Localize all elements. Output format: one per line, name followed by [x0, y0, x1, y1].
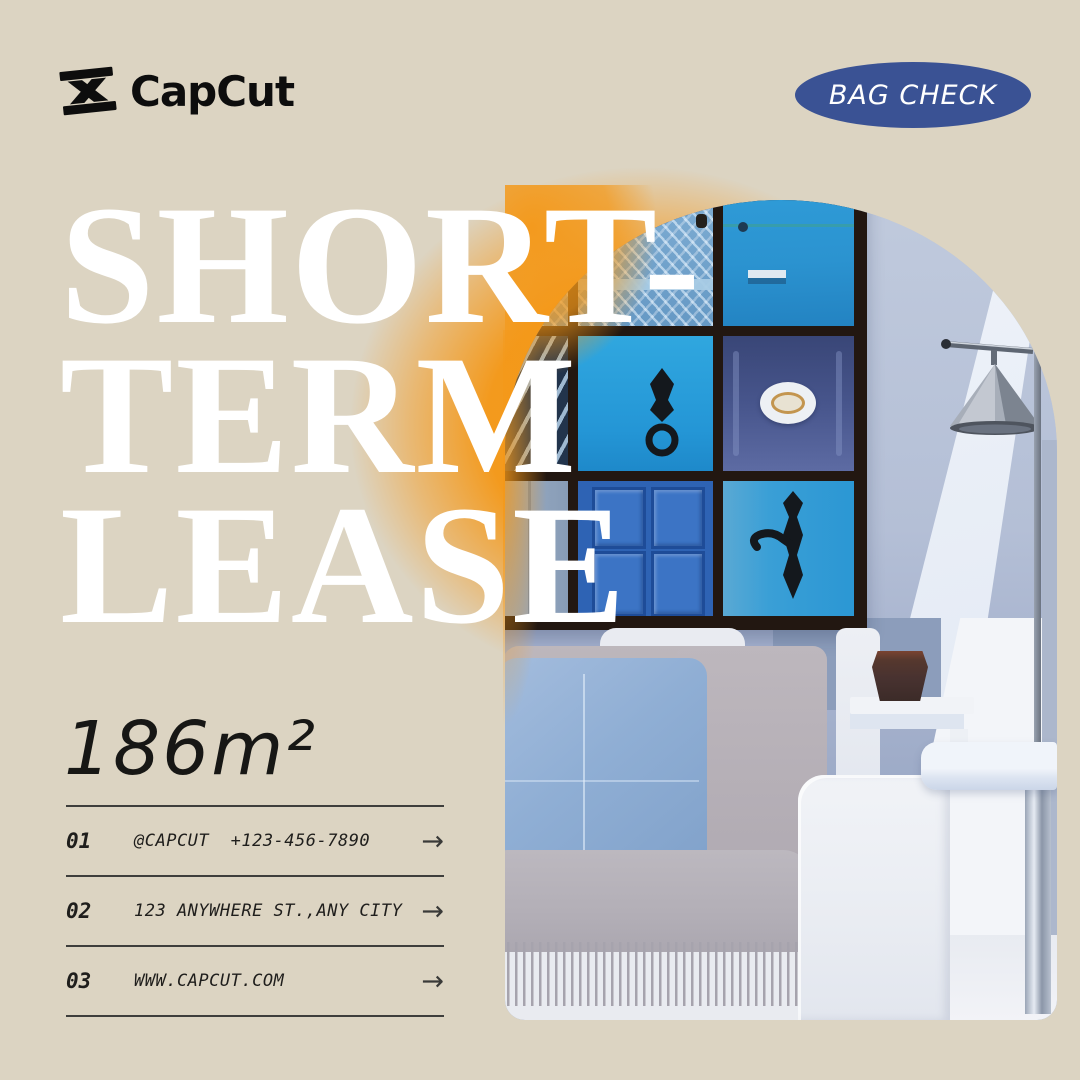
area-label: 186m²	[64, 706, 317, 792]
blanket-fringe	[505, 942, 807, 1006]
sofa-armrest	[798, 775, 950, 1020]
badge-label: BAG CHECK	[829, 80, 997, 111]
headline-line-1: SHORT-	[60, 190, 702, 340]
coffee-table-top	[921, 742, 1057, 790]
throw-blanket	[505, 850, 811, 952]
capcut-wordmark: CapCut	[130, 67, 294, 116]
row-text: @CAPCUT +123-456-7890	[134, 831, 421, 851]
headline: SHORT- TERM LEASE	[60, 190, 702, 640]
poster-canvas: SHORT- TERM LEASE CapCut BAG CHECK 186m²…	[0, 0, 1080, 1080]
contact-row-2[interactable]: 02 123 ANYWHERE ST.,ANY CITY →	[66, 875, 444, 945]
vase	[872, 651, 928, 701]
capcut-logo-icon	[58, 62, 118, 120]
floor-lamp-icon	[883, 328, 1057, 450]
arrow-icon: →	[421, 966, 444, 997]
arrow-icon: →	[421, 826, 444, 857]
row-index: 02	[66, 899, 134, 923]
arrow-icon: →	[421, 896, 444, 927]
headline-line-2: TERM	[60, 340, 702, 490]
bag-check-badge[interactable]: BAG CHECK	[795, 62, 1031, 128]
headline-line-3: LEASE	[60, 490, 702, 640]
table-chrome-leg	[1025, 788, 1051, 1014]
row-index: 01	[66, 829, 134, 853]
contact-row-3[interactable]: 03 WWW.CAPCUT.COM →	[66, 945, 444, 1017]
door-photo	[723, 200, 854, 326]
door-knob	[738, 222, 748, 232]
contact-list: 01 @CAPCUT +123-456-7890 → 02 123 ANYWHE…	[66, 805, 444, 1017]
letter-slot	[748, 270, 786, 278]
door-handle-icon	[749, 489, 815, 603]
row-text: 123 ANYWHERE ST.,ANY CITY	[134, 901, 421, 921]
contact-row-1[interactable]: 01 @CAPCUT +123-456-7890 →	[66, 805, 444, 875]
door-emblem	[760, 382, 816, 424]
door-photo	[723, 481, 854, 616]
lamp-pole	[1034, 348, 1041, 794]
side-table-edge	[850, 713, 964, 729]
row-text: WWW.CAPCUT.COM	[134, 971, 421, 991]
row-index: 03	[66, 969, 134, 993]
capcut-logo: CapCut	[58, 62, 294, 120]
door-photo	[723, 336, 854, 471]
